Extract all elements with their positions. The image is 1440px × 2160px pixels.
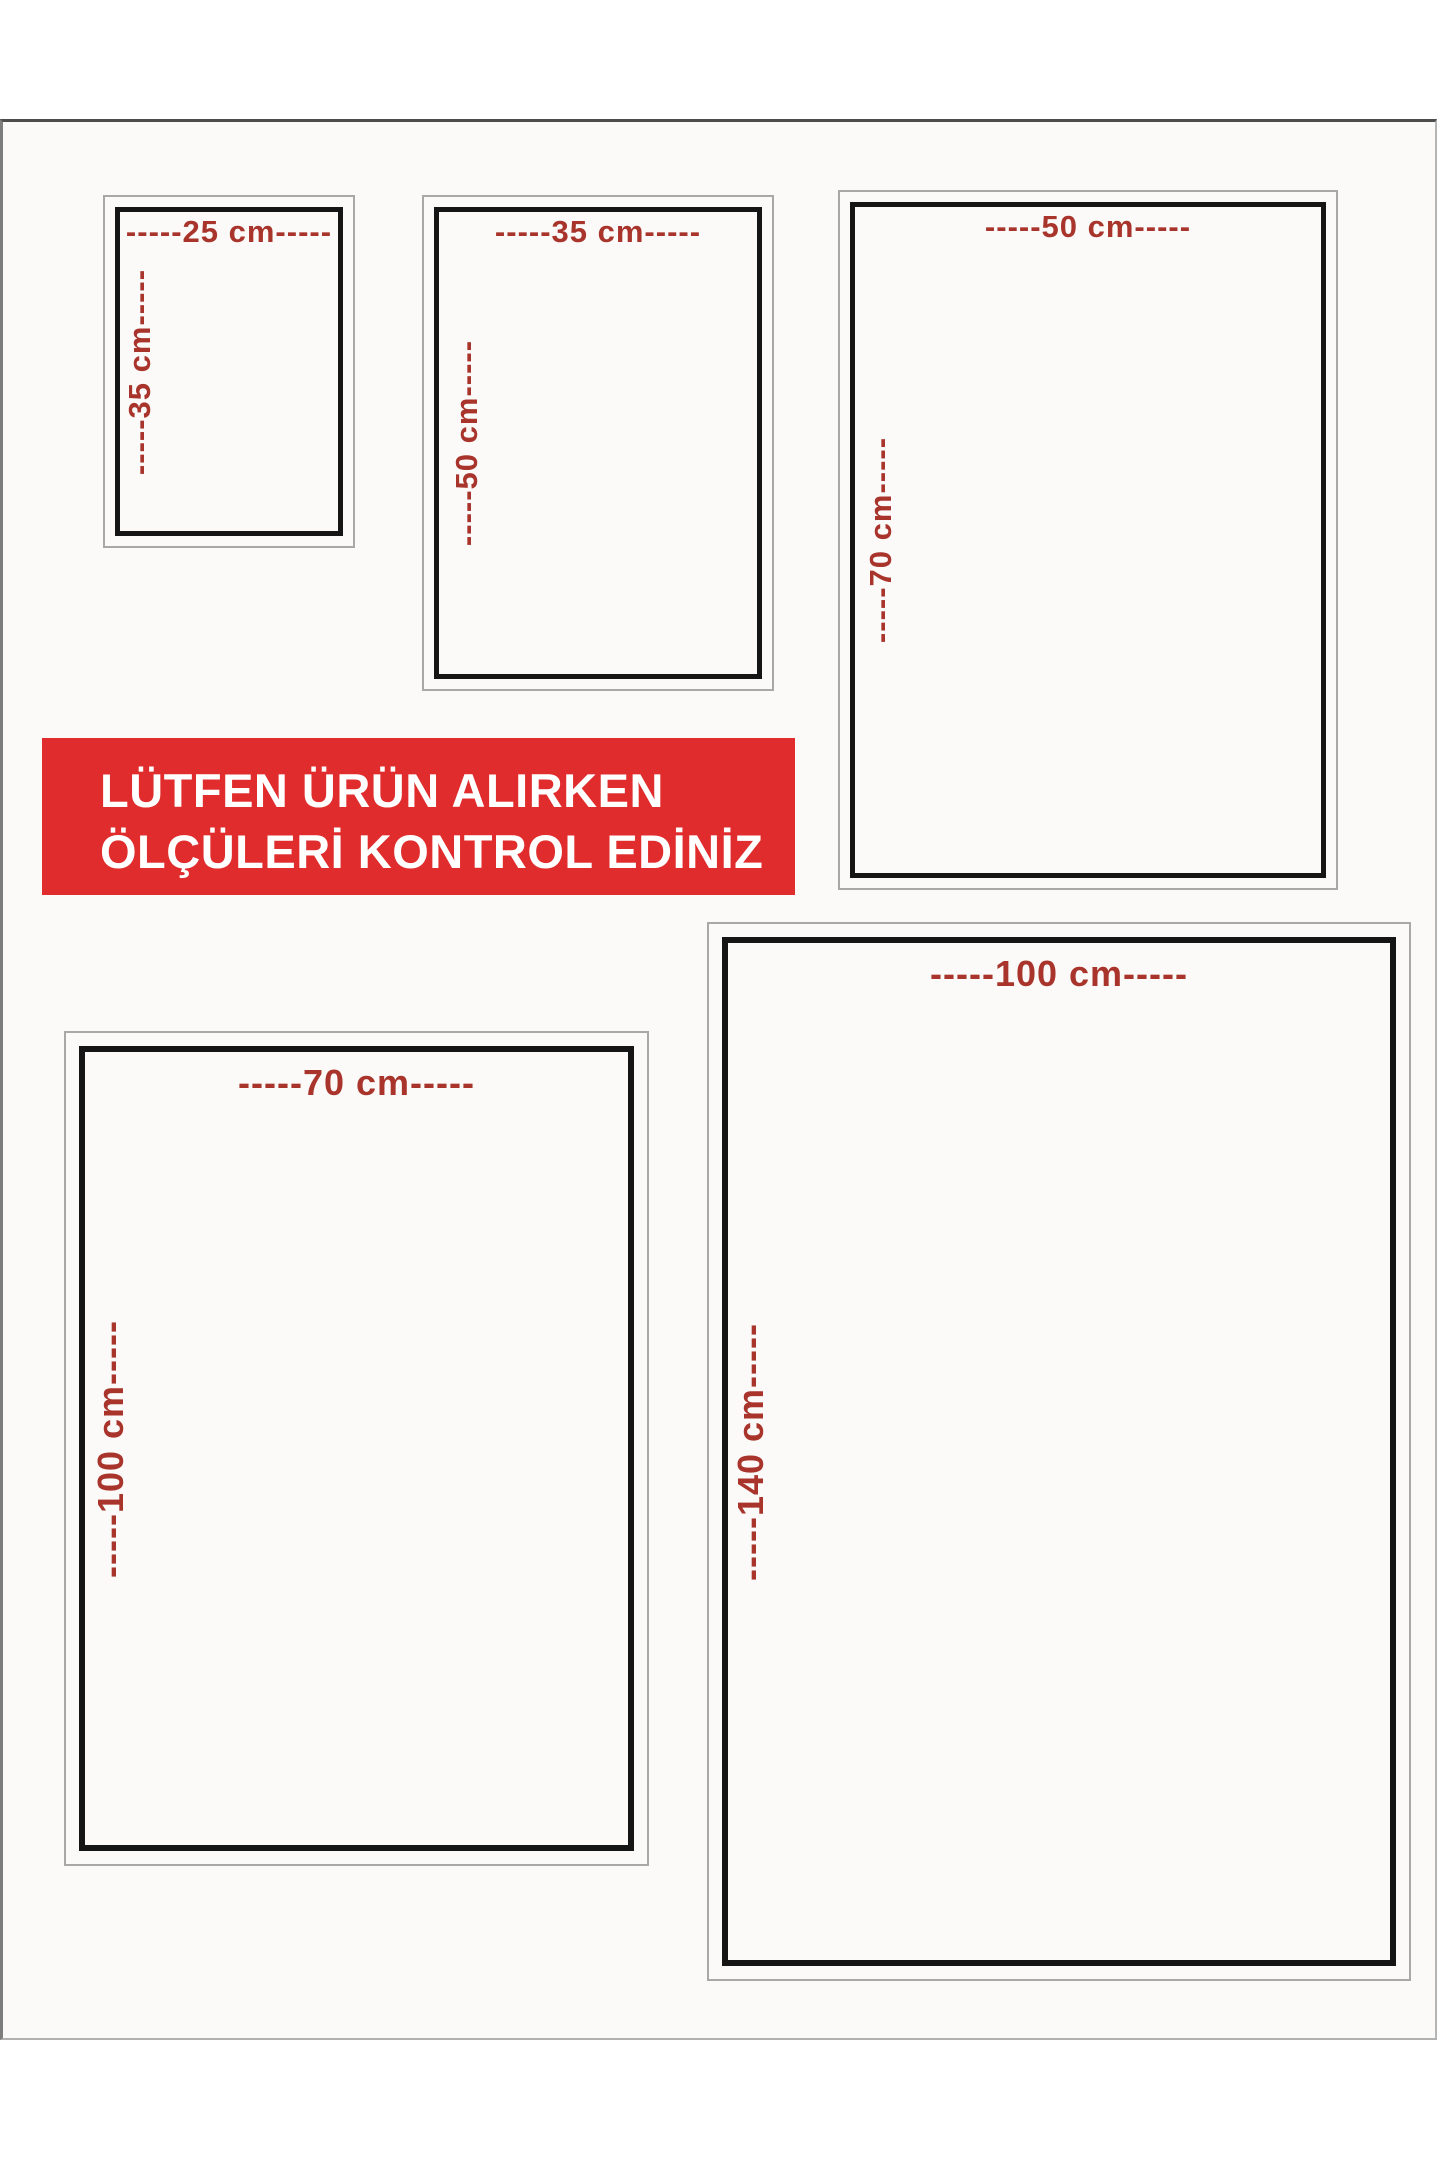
size-frame: -----100 cm----- -----140 cm----- xyxy=(722,937,1396,1966)
size-frame: -----25 cm----- -----35 cm----- xyxy=(115,207,343,536)
page-sheet: -----25 cm----- -----35 cm----- -----35 … xyxy=(0,119,1437,2040)
width-dimension-label: -----50 cm----- xyxy=(855,209,1321,245)
height-dimension-label: -----35 cm----- xyxy=(122,268,158,474)
size-box-25x35: -----25 cm----- -----35 cm----- xyxy=(103,195,355,548)
size-box-35x50: -----35 cm----- -----50 cm----- xyxy=(422,195,774,691)
size-frame: -----35 cm----- -----50 cm----- xyxy=(434,207,762,679)
size-box-100x140: -----100 cm----- -----140 cm----- xyxy=(707,922,1411,1981)
width-dimension-label: -----70 cm----- xyxy=(85,1062,628,1104)
size-frame: -----70 cm----- -----100 cm----- xyxy=(79,1046,634,1851)
width-dimension-label: -----100 cm----- xyxy=(728,953,1390,995)
warning-banner: LÜTFEN ÜRÜN ALIRKEN ÖLÇÜLERİ KONTROL EDİ… xyxy=(42,738,795,895)
width-dimension-label: -----25 cm----- xyxy=(120,214,338,250)
size-box-50x70: -----50 cm----- -----70 cm----- xyxy=(838,190,1338,890)
height-dimension-label: -----70 cm----- xyxy=(863,437,899,643)
size-frame: -----50 cm----- -----70 cm----- xyxy=(850,202,1326,878)
height-dimension-label: -----100 cm----- xyxy=(90,1320,132,1578)
warning-line-2: ÖLÇÜLERİ KONTROL EDİNİZ xyxy=(100,821,795,882)
size-box-70x100: -----70 cm----- -----100 cm----- xyxy=(64,1031,649,1866)
height-dimension-label: -----140 cm----- xyxy=(730,1323,772,1581)
warning-line-1: LÜTFEN ÜRÜN ALIRKEN xyxy=(100,760,795,821)
height-dimension-label: -----50 cm----- xyxy=(449,340,485,546)
width-dimension-label: -----35 cm----- xyxy=(439,214,757,250)
